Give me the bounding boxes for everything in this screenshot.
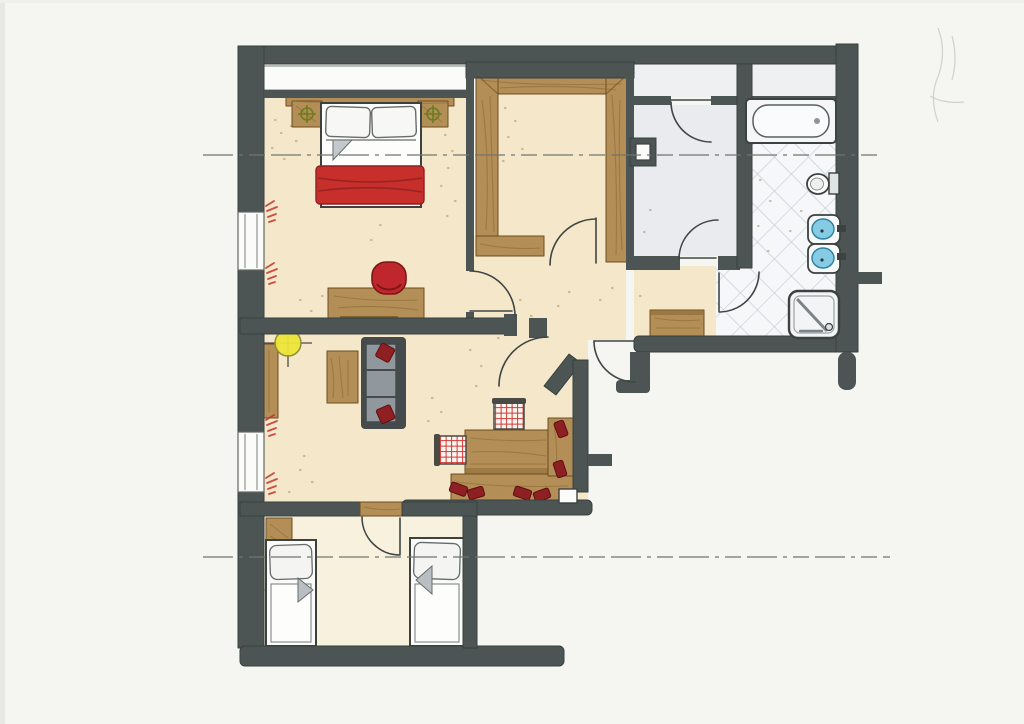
faucet <box>837 225 846 232</box>
closet-top-wall <box>466 62 634 78</box>
kids-east-wall <box>463 516 477 648</box>
bedroom-living-wall <box>240 318 514 334</box>
wardrobe-foot <box>476 236 544 256</box>
wall-hook-right <box>856 272 882 284</box>
wardrobe-right <box>606 74 628 262</box>
living-door-post <box>529 318 547 338</box>
wall-stub-east <box>588 454 612 466</box>
outer-wall-right-tail <box>838 352 856 390</box>
tub-drain <box>814 118 820 124</box>
window-bedroom <box>238 212 264 270</box>
wall-shelf <box>264 344 278 418</box>
floor-plan-canvas <box>0 0 1024 724</box>
wall-end-cap <box>504 314 517 336</box>
toilet <box>807 173 839 194</box>
north-strip-floor <box>634 64 836 97</box>
corridor-floor <box>634 105 737 256</box>
entry-hall <box>650 310 704 338</box>
desk-chair <box>372 262 406 294</box>
shower-drain <box>826 324 833 331</box>
outer-wall-bottom <box>240 646 564 666</box>
pillow <box>371 106 416 138</box>
pillow <box>413 542 460 580</box>
kids-north-wall-left <box>240 502 360 516</box>
single-bed-left <box>266 540 316 646</box>
outer-wall-top <box>238 46 858 64</box>
window-living <box>238 432 264 492</box>
bedroom-window-band <box>264 64 466 92</box>
dining-east-wall <box>573 360 588 492</box>
dining-chair-north <box>492 398 526 429</box>
bathtub <box>746 99 836 143</box>
red-blanket <box>316 166 424 204</box>
desk <box>328 288 424 320</box>
pillow <box>269 544 312 579</box>
bedroom-east-wall <box>466 76 474 271</box>
bathroom-west-wall <box>737 64 752 268</box>
service-shaft <box>630 138 656 166</box>
pillow <box>325 106 370 138</box>
corridor-south-wall-a <box>626 256 680 270</box>
floor-plan-page <box>0 0 1024 724</box>
sofa <box>361 337 406 429</box>
faucet <box>837 253 846 260</box>
shower <box>789 291 839 338</box>
bench-corner-window <box>559 489 577 503</box>
corridor-north-wall-a <box>626 96 671 105</box>
dining-chair-west <box>434 434 466 466</box>
scan-edge-left <box>0 0 5 724</box>
bedroom-top-wall <box>264 90 466 98</box>
outer-wall-left <box>238 46 264 648</box>
washbasin-bottom <box>808 244 846 273</box>
scan-edge-top <box>0 0 1024 3</box>
washbasin-top <box>808 215 846 244</box>
closet-door-floor <box>544 238 608 262</box>
duvet <box>415 584 459 642</box>
kids-north-wall-right <box>402 502 477 516</box>
single-bed-right <box>410 538 464 646</box>
